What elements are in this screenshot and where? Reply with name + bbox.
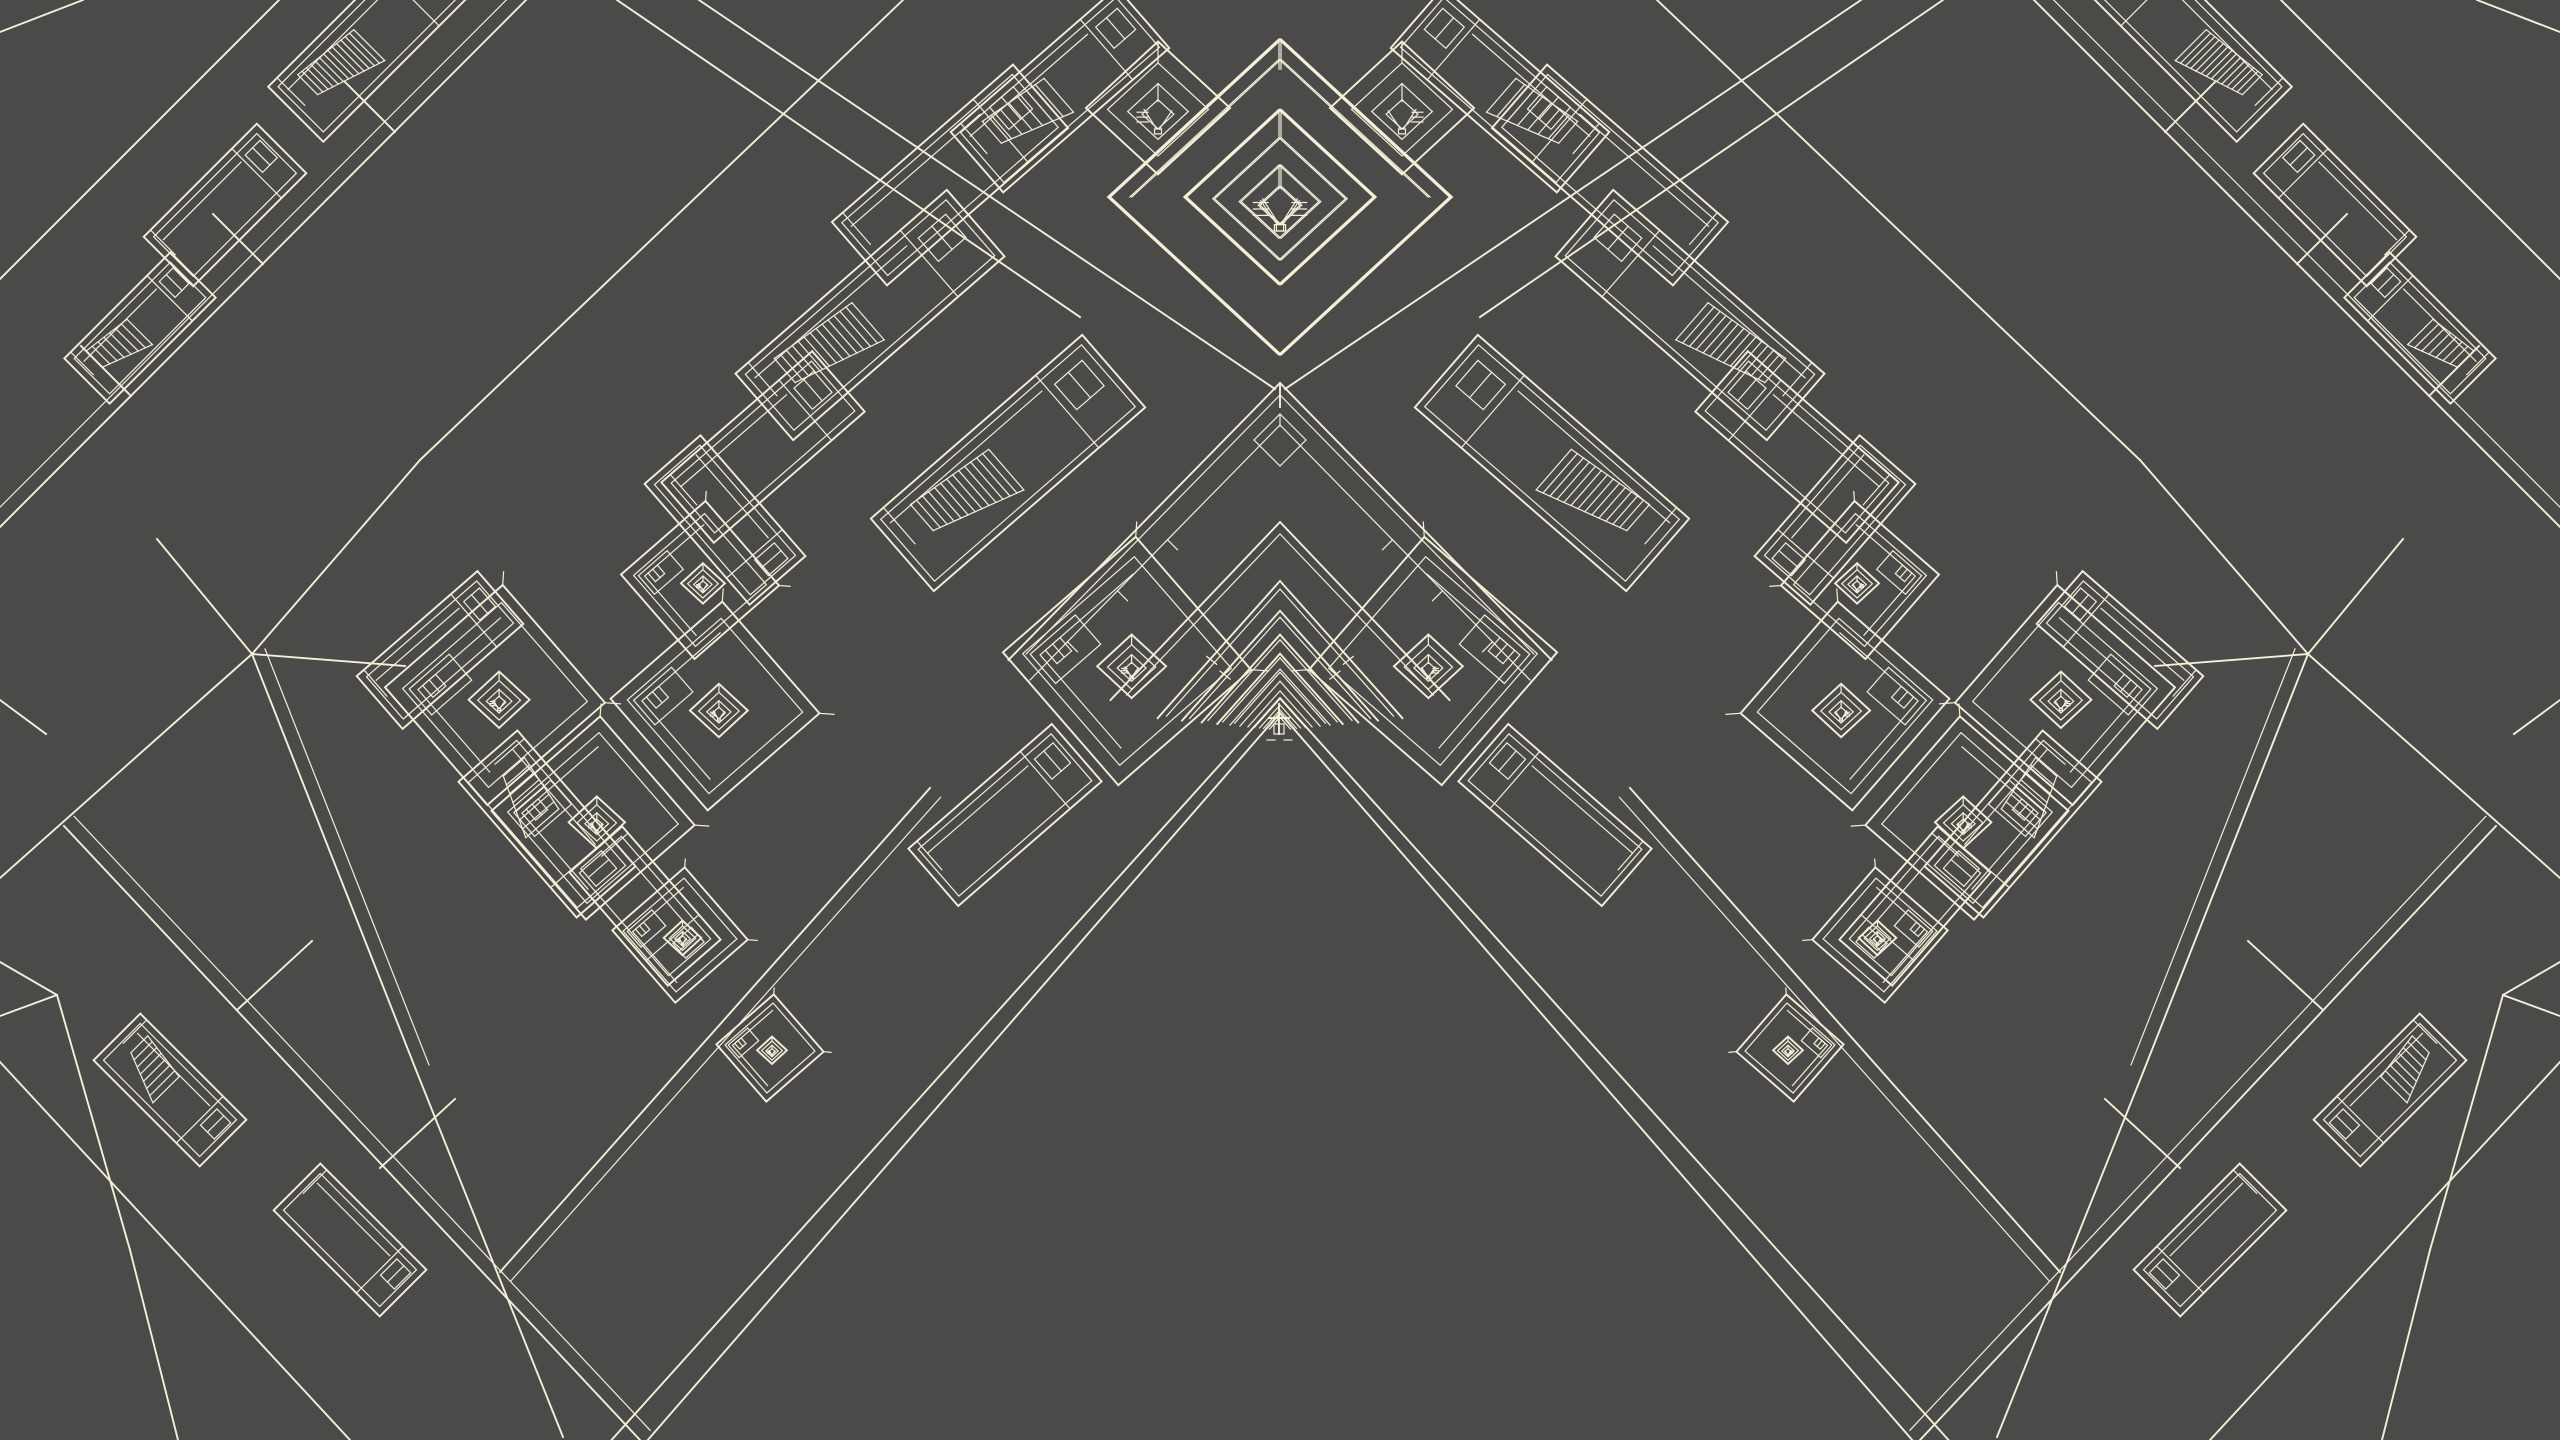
courtyard-block (1292, 522, 1558, 785)
hall-outline (94, 1014, 247, 1167)
street-lines (1285, 0, 2560, 1440)
street-edge (2165, 82, 2215, 132)
hall-partition (176, 1096, 223, 1143)
hall-end-partition (2385, 230, 2410, 255)
stair-tick (1564, 466, 1595, 502)
street-edge (1920, 826, 2496, 1440)
pavilion-base (498, 709, 501, 711)
hall-partition (1461, 375, 1524, 448)
hall-corridor-line (1875, 846, 1942, 923)
court-outline (1781, 501, 1939, 659)
street-edge (617, 0, 1080, 317)
courtyard-block (1003, 522, 1269, 785)
stair-tick (965, 466, 996, 502)
stair-tick (153, 1077, 179, 1103)
street-edge (2477, 0, 2560, 32)
street-edge (2503, 995, 2560, 1016)
street-edge (0, 995, 57, 1016)
pavilion-tower (1086, 42, 1230, 175)
hall-corridor-line (318, 1183, 390, 1255)
hall-room-divider (2156, 1266, 2172, 1282)
court-corner-stub (1940, 703, 1955, 704)
street-edge (2140, 460, 2308, 654)
stair-tick (2181, 33, 2211, 63)
center-recursion (612, 383, 1949, 1440)
pavilion-base (1856, 590, 1858, 592)
hall-room-divider (1107, 18, 1125, 39)
hall-corridor-line (851, 114, 980, 226)
stair-tick (2191, 40, 2219, 68)
hall-inner-wall (745, 200, 994, 430)
street-edge (57, 995, 130, 1250)
stair-tick (2415, 324, 2439, 348)
court-outline (385, 585, 605, 805)
stair-tick (147, 1065, 171, 1089)
stair-tick (852, 303, 884, 340)
recursion-chevron (1248, 691, 1312, 727)
court-corner-stub (1837, 589, 1838, 602)
stair-tick (1044, 78, 1073, 112)
hall-corridor-line (1532, 766, 1632, 853)
hall-end-partition (1618, 841, 1643, 870)
pavilion-base (702, 590, 704, 592)
stair-tick (1620, 500, 1644, 527)
building-hall (2254, 124, 2417, 287)
stair-tick (2429, 333, 2451, 354)
hall-end-partition (1783, 363, 1812, 396)
court-corner-stub (722, 589, 723, 602)
hall-partition (1427, 19, 1480, 79)
stair-tick (989, 449, 1024, 490)
hall-outline (908, 724, 1101, 906)
hall-room-divider (1435, 18, 1453, 39)
pavilion-tower (1812, 684, 1870, 737)
court-outline (1741, 602, 1950, 811)
stair-tick (2394, 1059, 2416, 1081)
building-hall (2037, 571, 2204, 729)
door-tick (1433, 591, 1443, 601)
building-hall (1458, 724, 1651, 906)
hall-outline (2088, 0, 2292, 142)
pavilion-base (1787, 1055, 1788, 1056)
door-tick (1068, 642, 1078, 652)
hall-end-partition (151, 230, 176, 255)
hall-partition (1020, 751, 1070, 808)
street-edge (157, 539, 252, 654)
street-lines (0, 0, 1275, 1440)
hall-end-partition (277, 78, 305, 106)
hall-outline (1458, 724, 1651, 906)
hall-partition (1602, 230, 1660, 296)
stair-tick (127, 319, 152, 344)
court-outline (611, 602, 820, 811)
pavilion-tower (1394, 635, 1463, 699)
stair-tick (2443, 342, 2462, 361)
hall-partition (1729, 380, 1782, 440)
stair-tick (2201, 47, 2228, 74)
stair-tick (2450, 346, 2468, 364)
hall-inner-wall (1565, 200, 1814, 430)
pavilion-base (2059, 709, 2062, 711)
stair-tick (2196, 44, 2224, 72)
hall-outline (2314, 1014, 2467, 1167)
wing-room-divider (1817, 1041, 1822, 1047)
street-edge (0, 1062, 350, 1440)
stair-tick (104, 337, 124, 357)
stair-tick (110, 333, 132, 354)
hall-room-divider (1779, 551, 1799, 568)
recursion-chevron-double (1208, 640, 1352, 721)
court-corner-stub (819, 713, 834, 714)
stair-tick (354, 30, 385, 61)
building-hall (94, 1014, 247, 1167)
hall-room-divider (207, 1116, 223, 1132)
hall-end-partition (917, 841, 942, 870)
stair-tick (959, 471, 989, 506)
hall-room-divider (1738, 380, 1756, 401)
street-edge (416, 1070, 563, 1437)
stair-tick (1536, 449, 1571, 490)
wing-room-divider (1914, 926, 1920, 933)
pavilion-base (1399, 129, 1406, 134)
hall-room-divider (1044, 751, 1062, 771)
stair-tick (2403, 1048, 2423, 1068)
hall-corridor-line (2319, 162, 2397, 240)
stair-tick (350, 33, 380, 63)
street-edge (0, 0, 83, 32)
street-edge-parallel (1620, 797, 2050, 1281)
stair-tick (2399, 1053, 2420, 1074)
stair-tick (2390, 1065, 2414, 1089)
stair-tick (337, 44, 365, 72)
courtyard-block (1729, 988, 1844, 1102)
hall-room-divider (804, 380, 822, 401)
court-corner-stub (1851, 825, 1865, 826)
building-hall (144, 124, 307, 287)
hall-partition (900, 230, 958, 296)
stair-tick (2422, 328, 2445, 351)
stair-tick (121, 324, 145, 348)
stair-tick (2457, 351, 2473, 367)
hall-outline (1755, 435, 1916, 604)
stair-tick (846, 307, 878, 343)
stair-tick (982, 121, 1001, 143)
stair-tick (2016, 787, 2044, 811)
street-edge (1997, 1070, 2144, 1437)
stair-tick (1497, 85, 1525, 117)
street-edge (0, 700, 46, 734)
street-edge (2382, 1250, 2430, 1440)
hall-inner-wall (278, 0, 462, 132)
street-edge (237, 941, 312, 1010)
hall-partition (2121, 0, 2176, 26)
building-hall (645, 435, 806, 604)
stair-rail (1571, 449, 1649, 504)
hall-room-divider (2378, 275, 2394, 291)
stair-tick (977, 458, 1010, 496)
stair-tick (2408, 319, 2433, 344)
apex-inner-wall (1030, 425, 1530, 680)
building-hall (871, 335, 1145, 591)
street-edge (213, 214, 263, 264)
hall-outline (357, 571, 524, 729)
stair-tick (1543, 454, 1577, 494)
wing-room-divider (738, 1041, 743, 1047)
stair-tick (1683, 307, 1715, 343)
stair-tick (1018, 97, 1043, 126)
building-hall (1755, 435, 1916, 604)
hall-room-divider (762, 551, 782, 568)
hall-outline (1839, 826, 1990, 985)
wing-room-divider (640, 926, 646, 933)
hall-partition (2337, 1096, 2384, 1143)
pavilion-base (718, 719, 721, 721)
pavilion-base (1877, 943, 1879, 944)
stair-tick (1690, 311, 1721, 346)
pavilion-funnel (2055, 701, 2060, 709)
recursion-chevron (1267, 714, 1293, 729)
stair-tick (917, 500, 941, 527)
street-edge (1480, 0, 1943, 317)
hall-corridor-line (1653, 246, 1805, 378)
hall-partition (1036, 375, 1099, 448)
stair-tick (1613, 496, 1638, 524)
stair-tick (2021, 780, 2047, 803)
hall-room-divider (387, 1266, 403, 1282)
stair-tick (150, 1071, 175, 1096)
stair-tick (86, 351, 102, 367)
mid-chevron-double (1127, 534, 1434, 695)
pavilion-tower (1330, 42, 1474, 175)
street-edge (2155, 654, 2308, 666)
foreground-roof-outer-edge (612, 698, 1949, 1440)
pavilion-base (1155, 129, 1162, 134)
hall-corridor-line (755, 246, 907, 378)
street-edge-parallel (1910, 816, 2486, 1430)
street-edge-parallel (511, 797, 941, 1281)
hall-corridor-line (2101, 608, 2184, 680)
hall-outline (645, 435, 806, 604)
wing-room-divider (653, 569, 660, 577)
stair-tick (2412, 1036, 2429, 1053)
pavilion-base (771, 1055, 772, 1056)
stair-tick (503, 758, 524, 776)
hall-room-divider (1499, 751, 1517, 771)
stair-tick (2211, 54, 2236, 79)
street-edge-parallel (74, 816, 650, 1430)
hall-room-divider (1068, 372, 1090, 397)
stair-rail (2408, 345, 2458, 368)
court-corner-stub (1729, 1052, 1737, 1053)
court-corner-stub (1875, 859, 1876, 867)
building-hall (357, 571, 524, 729)
court-corner-stub (2056, 572, 2057, 585)
pavilion-tower (757, 1037, 787, 1064)
stair-tick (840, 311, 871, 346)
stair-tick (1557, 462, 1589, 499)
stair-tick (345, 37, 374, 66)
court-outline (1003, 537, 1251, 785)
stair-rail (1001, 112, 1073, 143)
stair-tick (804, 337, 829, 366)
hall-partition (356, 1246, 403, 1293)
stair-tick (2381, 1077, 2407, 1103)
hall-end-partition (1863, 475, 1889, 505)
street-edge (2430, 995, 2503, 1250)
building-hall (2314, 1014, 2467, 1167)
courtyard-block (612, 859, 757, 1003)
recursion-chevron-double (1190, 617, 1371, 718)
pavilion-base (1274, 225, 1283, 231)
stair-tick (2186, 37, 2215, 66)
pavilion-funnel (1159, 111, 1172, 129)
building-hall (268, 0, 472, 142)
hall-outline (2037, 571, 2204, 729)
street-edge (0, 962, 57, 995)
hall-partition (1490, 751, 1540, 808)
building-hall (1839, 826, 1990, 985)
game-viewport[interactable] (0, 0, 2560, 1440)
street-edge (500, 788, 930, 1272)
building-hall (2344, 252, 2495, 403)
street-edge (2308, 654, 2560, 878)
building-hall (736, 190, 1005, 440)
street-edge (252, 460, 420, 654)
court-corner-stub (748, 940, 758, 941)
hall-outline (64, 252, 215, 403)
courtyard-block (1803, 859, 1948, 1003)
court-corner-stub (1854, 492, 1855, 502)
building-hall (1391, 0, 1610, 192)
hall-corridor-line (376, 608, 459, 680)
street-edge (2210, 1062, 2560, 1440)
stair-tick (1627, 505, 1650, 531)
stair-tick (2436, 337, 2456, 357)
door-tick (1118, 591, 1128, 601)
stair-tick (2408, 1042, 2426, 1060)
door-tick (1168, 540, 1178, 550)
foreground-roof-inner-edge (648, 713, 1912, 1440)
stair-tick (1571, 471, 1601, 506)
stair-tick (1518, 97, 1543, 126)
court-corner-stub (1726, 713, 1741, 714)
street-edge (2514, 700, 2560, 734)
court-corner-stub (1786, 988, 1787, 994)
building-hall (1556, 190, 1825, 440)
wing-room-divider (1900, 569, 1907, 577)
street-edge-parallel (265, 649, 429, 1065)
wireframe-scene (0, 0, 2560, 1440)
wing-room-divider (429, 680, 439, 692)
hall-corridor-line (2170, 1183, 2242, 1255)
court-corner-stub (605, 703, 620, 704)
pavilion-base (1840, 719, 1843, 721)
stair-tick (1550, 458, 1583, 496)
apex-chevron-double (1026, 395, 1534, 654)
stair-rail (1487, 112, 1559, 143)
recursive-chevron-structure (612, 383, 1949, 1440)
building-hall (908, 724, 1101, 906)
street-edge (0, 654, 252, 878)
hall-partition (2368, 276, 2413, 321)
building-hall (951, 0, 1170, 192)
pavilion-base (1276, 225, 1285, 231)
stair-rail (148, 1036, 179, 1077)
hall-room-divider (253, 148, 270, 165)
hall-outline (2344, 252, 2495, 403)
street-edge (1630, 788, 2060, 1272)
pavilion-base (682, 943, 684, 944)
hall-corridor-line (1580, 114, 1709, 226)
stair-tick (328, 51, 354, 77)
hall-partition (451, 594, 497, 647)
wing-room-divider (2121, 680, 2131, 692)
street-edge (64, 826, 640, 1440)
stair-tick (774, 359, 795, 383)
hall-corridor-line (618, 846, 685, 923)
building-hall (64, 252, 215, 403)
stair-rail (103, 345, 153, 368)
stair-rail (2381, 1036, 2412, 1077)
hall-end-partition (2255, 78, 2283, 106)
stair-tick (2385, 1071, 2410, 1096)
street-edge-parallel (2131, 649, 2295, 1065)
hall-partition (147, 276, 192, 321)
hall-outline (2254, 124, 2417, 287)
courtyard-block (716, 988, 831, 1102)
stair-tick (798, 341, 822, 369)
hall-partition (1080, 19, 1133, 79)
hall-room-divider (1470, 372, 1492, 397)
hall-room-divider (2336, 1116, 2352, 1132)
stair-tick (324, 54, 349, 79)
court-corner-stub (779, 586, 790, 587)
stair-tick (137, 1048, 157, 1068)
hall-room-divider (166, 275, 182, 291)
street-edge (130, 1250, 178, 1440)
street-edge (2503, 962, 2560, 995)
stair-tick (131, 1036, 148, 1053)
stair-tick (516, 787, 544, 811)
street-edge (2297, 214, 2347, 264)
stair-tick (2175, 30, 2206, 61)
court-corner-stub (695, 825, 709, 826)
court-wing (1867, 667, 1926, 725)
stair-rail (2407, 1053, 2429, 1103)
hall-partition (384, 0, 439, 26)
pavilion-tower (2030, 672, 2091, 728)
court-corner-stub (706, 492, 707, 502)
stair-rail (131, 1053, 153, 1103)
court-corner-stub (824, 1052, 832, 1053)
hall-outline (736, 190, 1005, 440)
court-outline (1309, 537, 1557, 785)
stair-tick (923, 496, 948, 524)
street-edge (345, 82, 395, 132)
stair-tick (1559, 121, 1578, 143)
stair-tick (983, 454, 1017, 494)
court-outline (1955, 585, 2175, 805)
building-hall (2088, 0, 2292, 142)
stair-tick (523, 802, 554, 829)
court-corner-stub (1770, 586, 1781, 587)
hall-outline (268, 0, 472, 142)
hall-end-partition (748, 363, 777, 396)
street-edge (2308, 539, 2403, 654)
court-corner-stub (503, 572, 504, 585)
hall-inner-wall (1425, 345, 1680, 581)
court-outline (621, 501, 779, 659)
